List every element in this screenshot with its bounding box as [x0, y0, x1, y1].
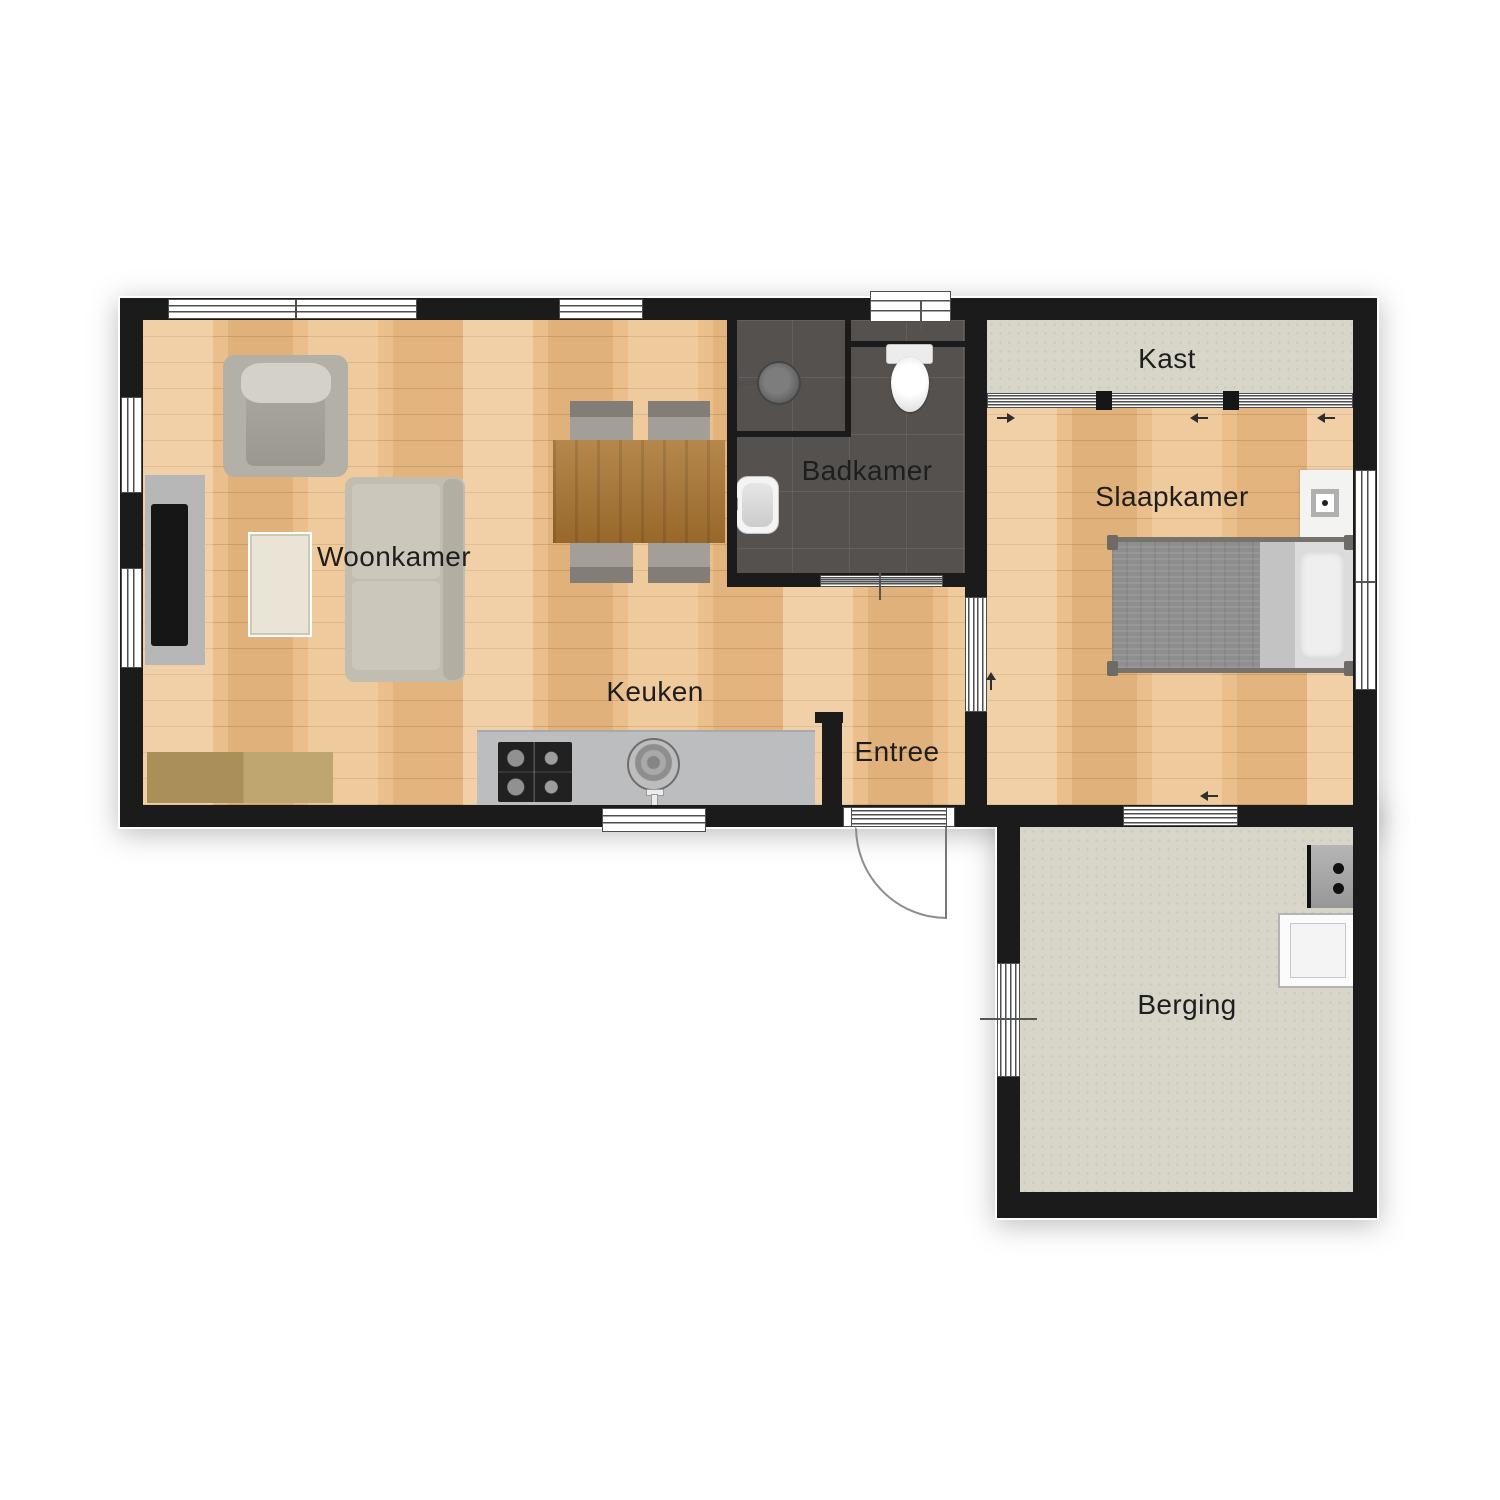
washbasin-bowl: [742, 483, 773, 527]
room-label-badkamer: Badkamer: [802, 457, 933, 485]
shower-arm: [737, 381, 759, 385]
entrance-door-sill: [851, 807, 947, 827]
nightstand-lamp-dot: [1322, 500, 1328, 506]
stove-icon: [498, 742, 572, 802]
wall-storage-bottom: [997, 1192, 1377, 1218]
sliding-door-arrow-icon: [997, 417, 1013, 419]
window-icon: [559, 299, 643, 319]
wall-right: [1353, 298, 1377, 1218]
bed-blanket: [1112, 542, 1260, 668]
armchair-cushion: [241, 363, 331, 403]
sliding-door-arrow-icon: [1319, 417, 1335, 419]
wall-left: [120, 298, 143, 827]
floor-plan: Woonkamer Keuken Badkamer Entree Kast Sl…: [0, 0, 1500, 1500]
window-center-tick: [920, 300, 922, 331]
sliding-door-arrow-icon: [990, 674, 992, 690]
sofa-cushion: [352, 581, 440, 670]
storage-window-line: [980, 1018, 1037, 1020]
tv-icon: [151, 504, 188, 646]
dining-chair-back: [648, 401, 710, 417]
bed-pillow: [1299, 551, 1345, 659]
wall-storage-left-lower: [997, 1077, 1020, 1192]
bedroom-sliding-door: [965, 597, 987, 712]
sofa-backrest: [443, 479, 463, 680]
closet-door-post: [1223, 391, 1239, 410]
sliding-door-arrow-icon: [1192, 417, 1208, 419]
bed-post: [1107, 661, 1118, 676]
bathroom-door-sill: [820, 575, 943, 587]
kitchen-window-icon: [602, 808, 706, 832]
wall-divider-bedroom: [965, 320, 987, 805]
storage-sliding-door: [1123, 806, 1238, 826]
sideboard-icon: [147, 752, 333, 803]
shower-partition-vertical: [845, 320, 851, 437]
entrance-door-icon: [855, 827, 947, 919]
room-label-berging: Berging: [1137, 991, 1236, 1019]
room-label-entree: Entree: [855, 738, 940, 766]
storage-window-icon: [997, 963, 1020, 1077]
sliding-door-arrow-icon: [1202, 795, 1218, 797]
dining-chair-back: [570, 401, 633, 417]
kitchen-sink-icon: [627, 738, 680, 791]
dining-table-icon: [553, 440, 725, 543]
shower-partition-horizontal: [735, 431, 851, 437]
washing-machine-door: [1290, 923, 1346, 978]
armchair-seat: [246, 392, 325, 466]
bed-sheet-fold: [1260, 542, 1295, 668]
boiler-dot: [1333, 863, 1344, 874]
rug-icon: [248, 532, 312, 637]
room-label-kast: Kast: [1138, 345, 1196, 373]
room-label-keuken: Keuken: [606, 678, 703, 706]
window-icon: [121, 397, 142, 493]
bed-rail-bottom: [1107, 668, 1355, 673]
window-icon: [121, 568, 142, 668]
door-frame-cap: [843, 807, 852, 827]
room-label-woonkamer: Woonkamer: [317, 543, 471, 571]
wall-entree-stub-v: [822, 712, 842, 805]
boiler-dot: [1333, 883, 1344, 894]
wall-bathroom-left: [727, 320, 737, 587]
bedroom-window-icon: [1355, 470, 1376, 690]
shower-icon: [757, 361, 801, 405]
closet-door-post: [1096, 391, 1112, 410]
window-icon: [168, 299, 296, 319]
bathroom-window-icon: [870, 291, 951, 322]
bathroom-door-tick: [879, 571, 881, 600]
wall-storage-left-upper: [997, 827, 1020, 963]
dining-chair-back: [648, 567, 710, 583]
closet-sliding-doors: [987, 393, 1353, 408]
window-icon: [296, 299, 417, 319]
dining-chair-back: [570, 567, 633, 583]
bed-post: [1107, 535, 1118, 550]
room-label-slaapkamer: Slaapkamer: [1095, 483, 1248, 511]
window-divider-tick: [1356, 581, 1375, 583]
bed-rail-top: [1107, 537, 1355, 542]
door-frame-cap: [946, 807, 955, 827]
